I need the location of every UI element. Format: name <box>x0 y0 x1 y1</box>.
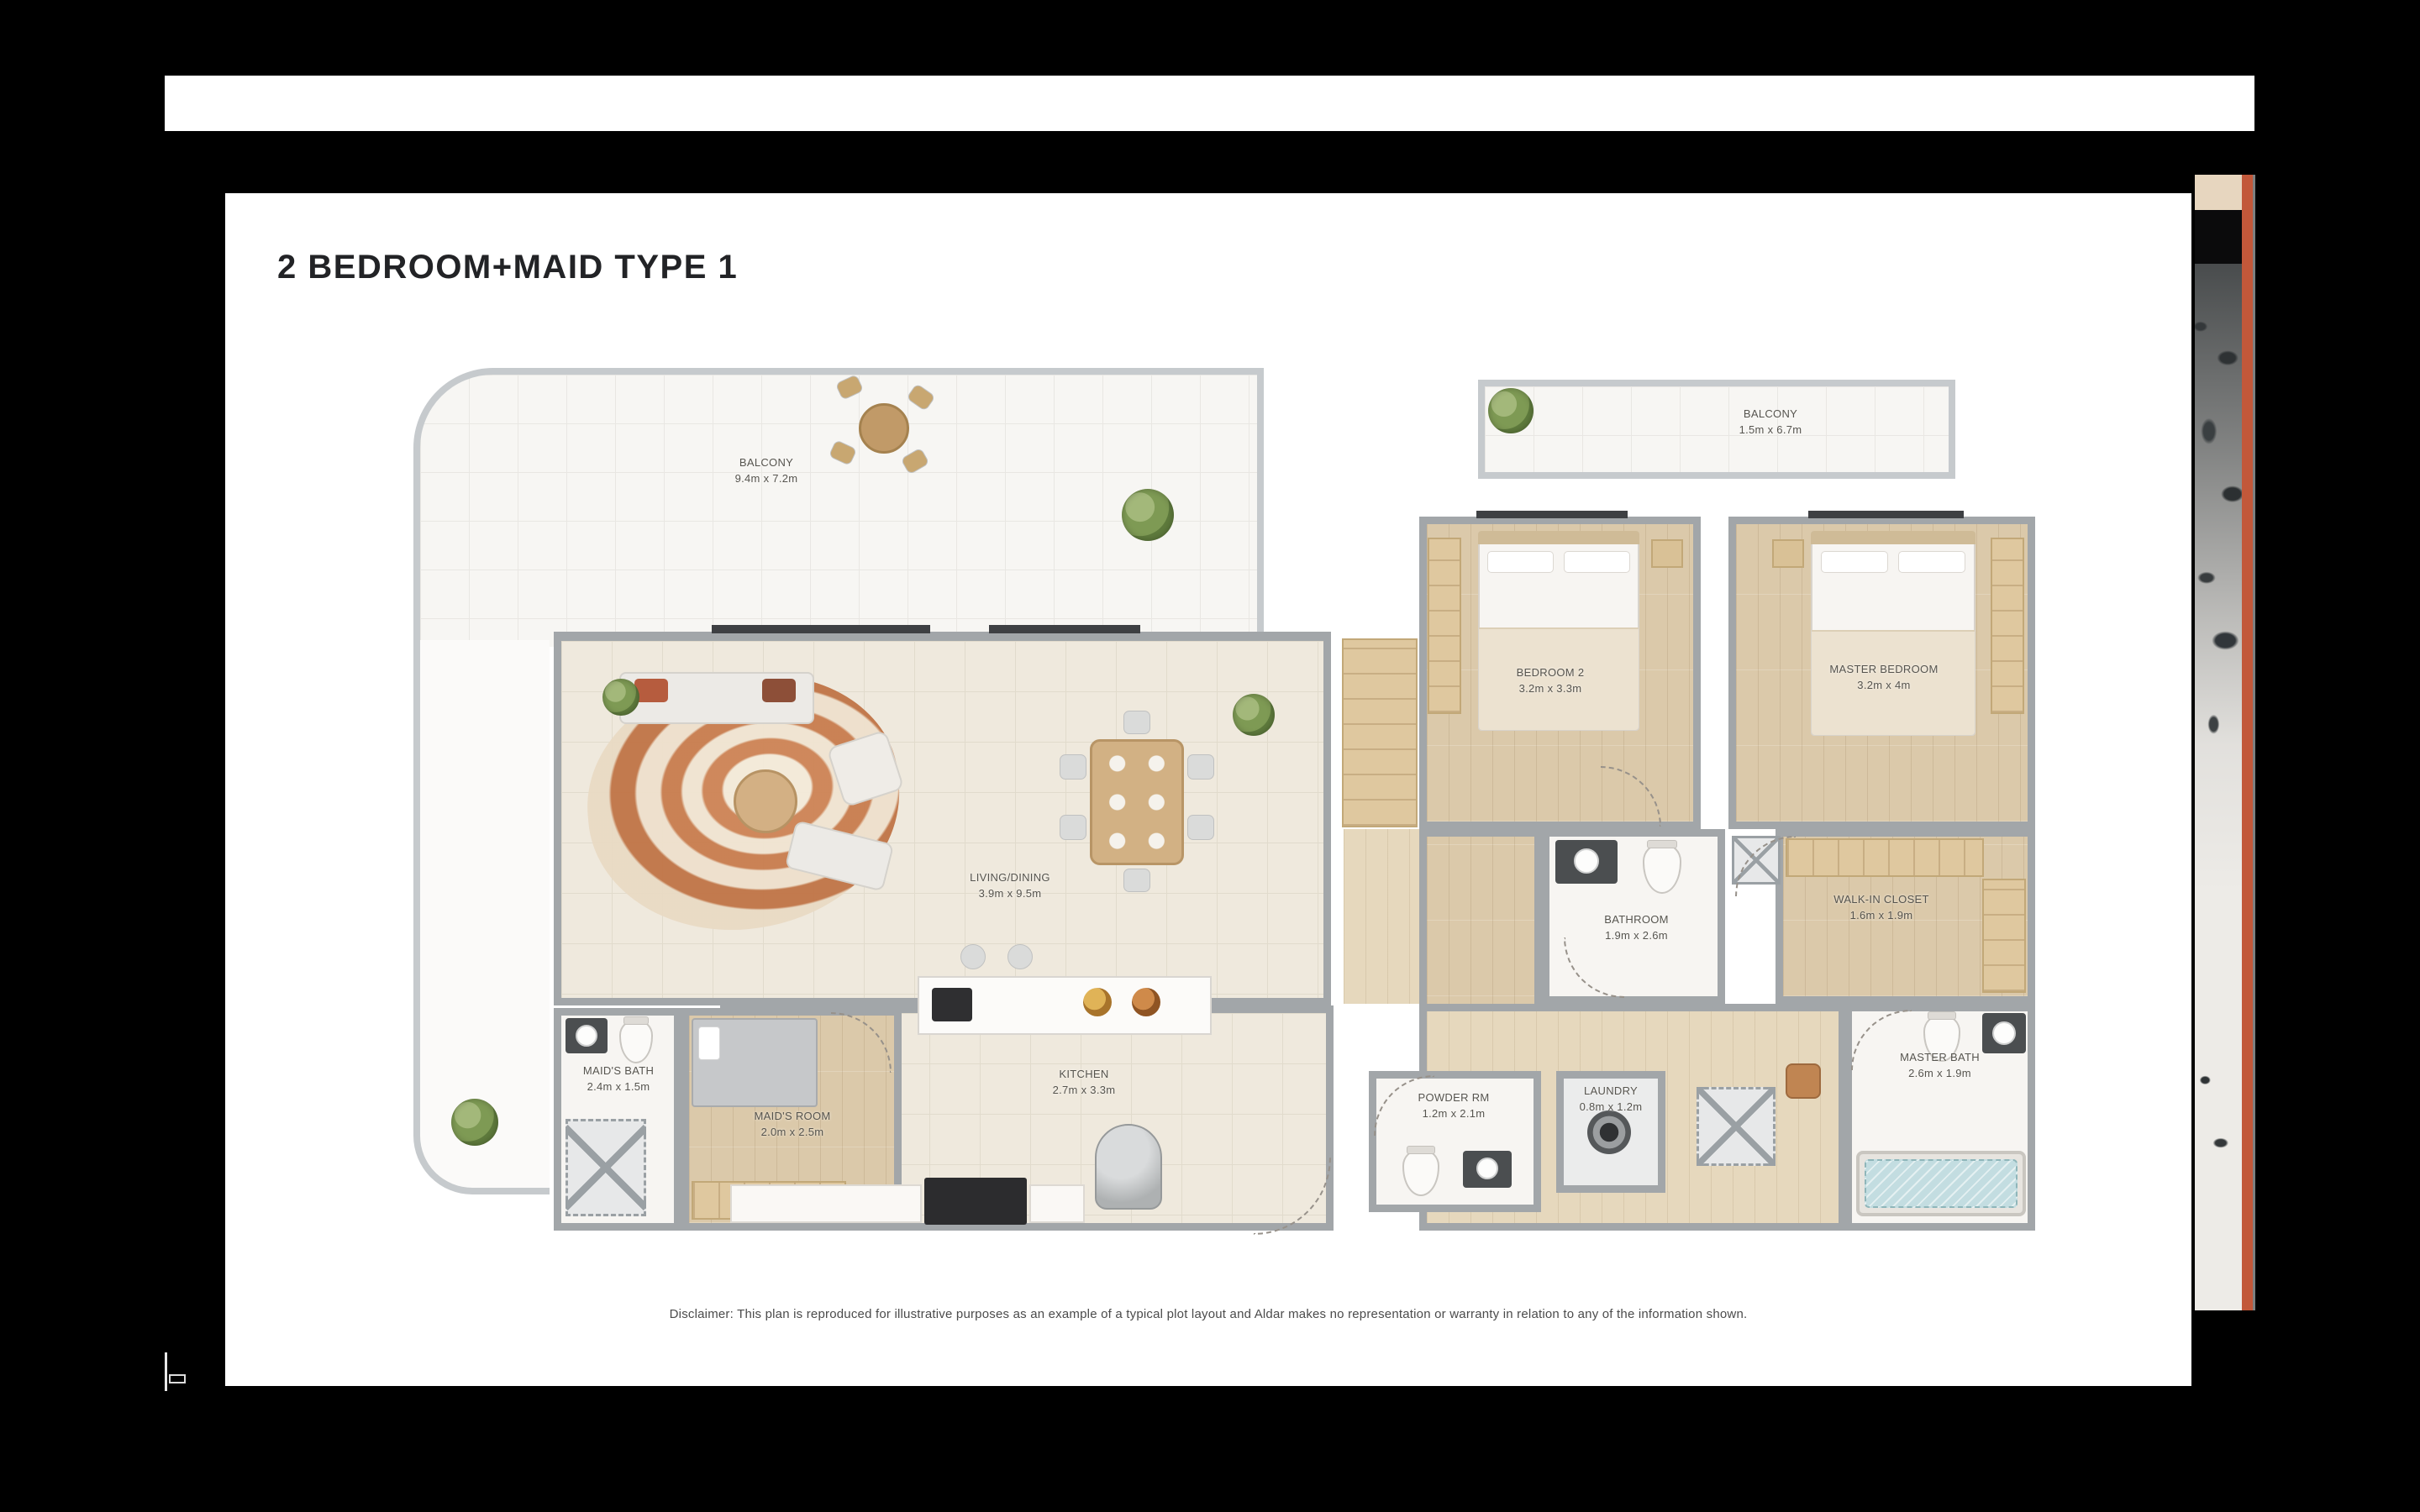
sink <box>576 1025 597 1047</box>
stair-shaft <box>1697 1087 1776 1166</box>
hall-stool <box>1786 1063 1821 1099</box>
balcony-plant <box>1122 489 1174 541</box>
terrace-plant <box>451 1099 498 1146</box>
kitchen-counter <box>1029 1184 1085 1223</box>
bedroom2-bed <box>1478 531 1639 731</box>
island-stool <box>1007 944 1033 969</box>
master-wardrobe <box>1991 538 2024 714</box>
hall-link <box>1344 829 1419 1004</box>
maids-shower <box>566 1119 646 1216</box>
washer <box>1587 1110 1631 1154</box>
coffee-table <box>734 769 797 833</box>
master-window-frame <box>1808 511 1964 518</box>
sink <box>1476 1158 1498 1179</box>
sink <box>1574 848 1599 874</box>
maids-bath-vanity <box>566 1018 608 1053</box>
room-label-laundry: LAUNDRY0.8m x 1.2m <box>1554 1084 1668 1116</box>
dining-chair <box>1123 869 1150 892</box>
fruit-bowl <box>1132 988 1160 1016</box>
artwork-beige-block <box>2195 175 2242 210</box>
powder-vanity <box>1463 1151 1512 1188</box>
floor-plan: BALCONY9.4m x 7.2m BALCONY1.5m x 6.7m LI… <box>367 344 2033 1235</box>
artwork-gray-edge <box>2253 175 2255 1310</box>
master-nightstand <box>1772 539 1804 568</box>
hall-closet-column <box>1342 638 1418 827</box>
room-label-maids-room: MAID'S ROOM2.0m x 2.5m <box>720 1109 865 1141</box>
balcony-door-frame <box>989 625 1140 633</box>
room-label-maids-bath: MAID'S BATH2.4m x 1.5m <box>557 1063 680 1095</box>
fruit-bowl <box>1083 988 1112 1016</box>
sofa-cushion <box>762 679 796 702</box>
text-cursor-marker <box>165 1352 167 1391</box>
bathroom-vanity <box>1555 840 1618 884</box>
bedroom2-nightstand <box>1651 539 1683 568</box>
room-label-bedroom-2: BEDROOM 23.2m x 3.3m <box>1466 665 1634 697</box>
bathtub-water <box>1865 1159 2018 1208</box>
oven <box>924 1178 1027 1225</box>
artwork-black-block <box>2195 210 2242 264</box>
room-label-master-bath: MASTER BATH2.6m x 1.9m <box>1858 1050 2022 1082</box>
kitchen-counter <box>730 1184 922 1223</box>
sink <box>1992 1021 2016 1045</box>
screen-backdrop: 2 BEDROOM+MAID TYPE 1 <box>0 0 2420 1512</box>
balcony-door-frame <box>712 625 930 633</box>
dining-chair <box>1187 815 1214 840</box>
dining-chair <box>1187 754 1214 780</box>
bathtub <box>1856 1151 2026 1216</box>
fridge <box>1095 1124 1162 1210</box>
artwork-texture <box>2195 264 2242 1310</box>
room-label-master-bedroom: MASTER BEDROOM3.2m x 4m <box>1779 662 1989 694</box>
room-label-kitchen: KITCHEN2.7m x 3.3m <box>1013 1067 1155 1099</box>
dining-chair <box>1060 815 1086 840</box>
master-bed <box>1811 531 1975 736</box>
living-plant <box>602 679 639 716</box>
room-label-balcony-right: BALCONY1.5m x 6.7m <box>1644 407 1897 438</box>
bedroom2-window-frame <box>1476 511 1628 518</box>
sofa-cushion <box>634 679 668 702</box>
dining-chair <box>1060 754 1086 780</box>
dining-chair <box>1123 711 1150 734</box>
room-label-living: LIVING/DINING3.9m x 9.5m <box>905 870 1115 902</box>
artwork-orange-stripe <box>2242 175 2253 1310</box>
top-white-bar <box>165 76 2254 131</box>
room-label-balcony-main: BALCONY9.4m x 7.2m <box>653 455 880 487</box>
room-label-bathroom: BATHROOM1.9m x 2.6m <box>1567 912 1706 944</box>
bedroom2-wardrobe <box>1428 538 1461 714</box>
dining-table <box>1090 739 1184 865</box>
room-label-walk-in-closet: WALK-IN CLOSET1.6m x 1.9m <box>1781 892 1982 924</box>
maids-bed-pillow <box>698 1026 720 1060</box>
espresso-machine <box>932 988 972 1021</box>
disclaimer-text: Disclaimer: This plan is reproduced for … <box>225 1307 2191 1321</box>
balcony-right-plant <box>1488 388 1534 433</box>
room-label-powder: POWDER RM1.2m x 2.1m <box>1377 1090 1530 1122</box>
page-title: 2 BEDROOM+MAID TYPE 1 <box>277 249 738 286</box>
text-cursor-box <box>169 1374 186 1383</box>
brochure-page: 2 BEDROOM+MAID TYPE 1 <box>225 193 2191 1386</box>
living-corner-plant <box>1233 694 1275 736</box>
master-bath-vanity <box>1982 1013 2026 1053</box>
balcony-table <box>859 403 909 454</box>
walkin-wardrobe-right <box>1982 879 2026 993</box>
walkin-wardrobe-top <box>1786 838 1984 877</box>
next-page-artwork <box>2195 175 2255 1310</box>
island-stool <box>960 944 986 969</box>
